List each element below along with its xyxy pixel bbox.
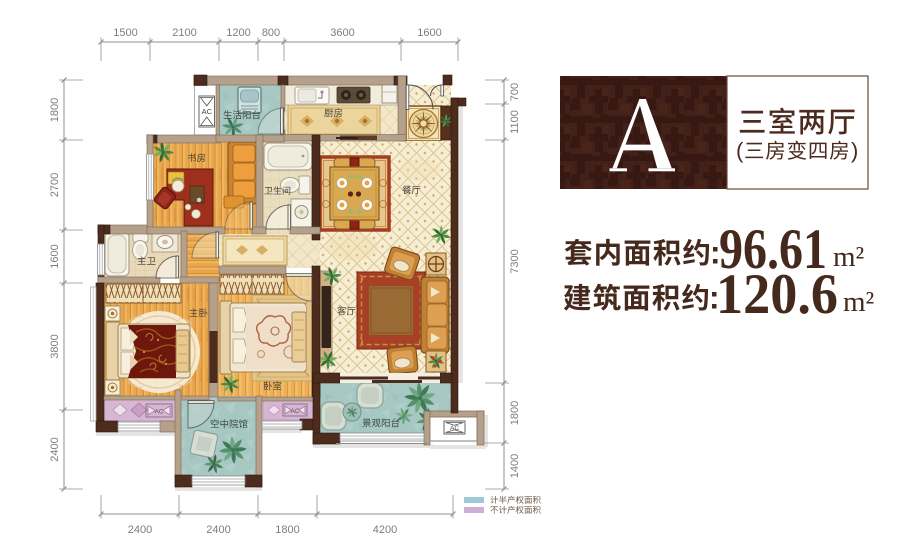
svg-text:1500: 1500	[113, 27, 137, 39]
svg-text:800: 800	[262, 27, 280, 39]
svg-text:1400: 1400	[509, 454, 521, 478]
svg-text:1800: 1800	[275, 524, 299, 536]
svg-text:2700: 2700	[49, 173, 61, 197]
svg-text:1800: 1800	[49, 98, 61, 122]
svg-text:4200: 4200	[373, 524, 397, 536]
svg-text:AC: AC	[290, 408, 299, 415]
svg-text:1600: 1600	[49, 244, 61, 268]
svg-text:m²: m²	[843, 286, 875, 318]
svg-text:2100: 2100	[172, 27, 196, 39]
svg-text:7300: 7300	[509, 249, 521, 273]
svg-text:2400: 2400	[206, 524, 230, 536]
svg-text:700: 700	[509, 83, 521, 101]
svg-text:AC: AC	[202, 107, 213, 116]
svg-text:1600: 1600	[417, 27, 441, 39]
svg-text:1100: 1100	[509, 110, 521, 134]
svg-text:2400: 2400	[128, 524, 152, 536]
svg-text:AC: AC	[450, 425, 459, 432]
svg-text:1200: 1200	[226, 27, 250, 39]
svg-text:2400: 2400	[49, 437, 61, 461]
svg-text:1800: 1800	[509, 401, 521, 425]
svg-text:): )	[851, 138, 858, 163]
svg-text:120.6: 120.6	[716, 263, 838, 326]
svg-text:3600: 3600	[330, 27, 354, 39]
svg-text:AC: AC	[154, 409, 163, 416]
svg-text:3800: 3800	[49, 334, 61, 358]
svg-text:(: (	[736, 138, 744, 163]
